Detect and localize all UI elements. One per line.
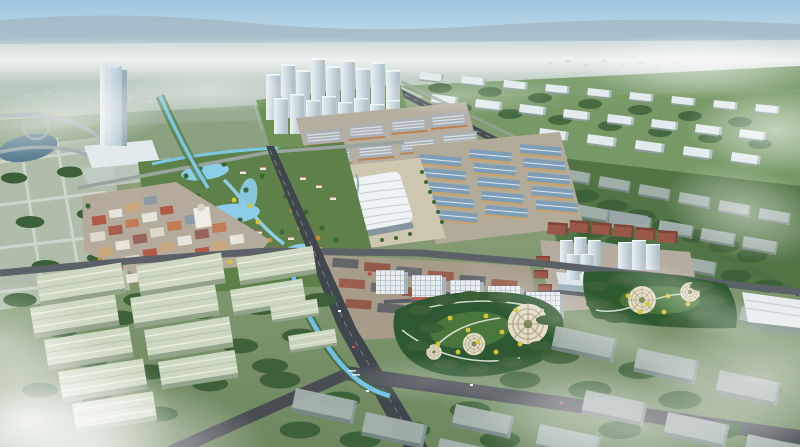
aerial-rendering: Aerial bird's-eye rendering of a planned… xyxy=(0,0,800,447)
masterplan-scene: Aerial bird's-eye rendering of a planned… xyxy=(0,0,800,447)
tower-crown xyxy=(103,62,119,68)
